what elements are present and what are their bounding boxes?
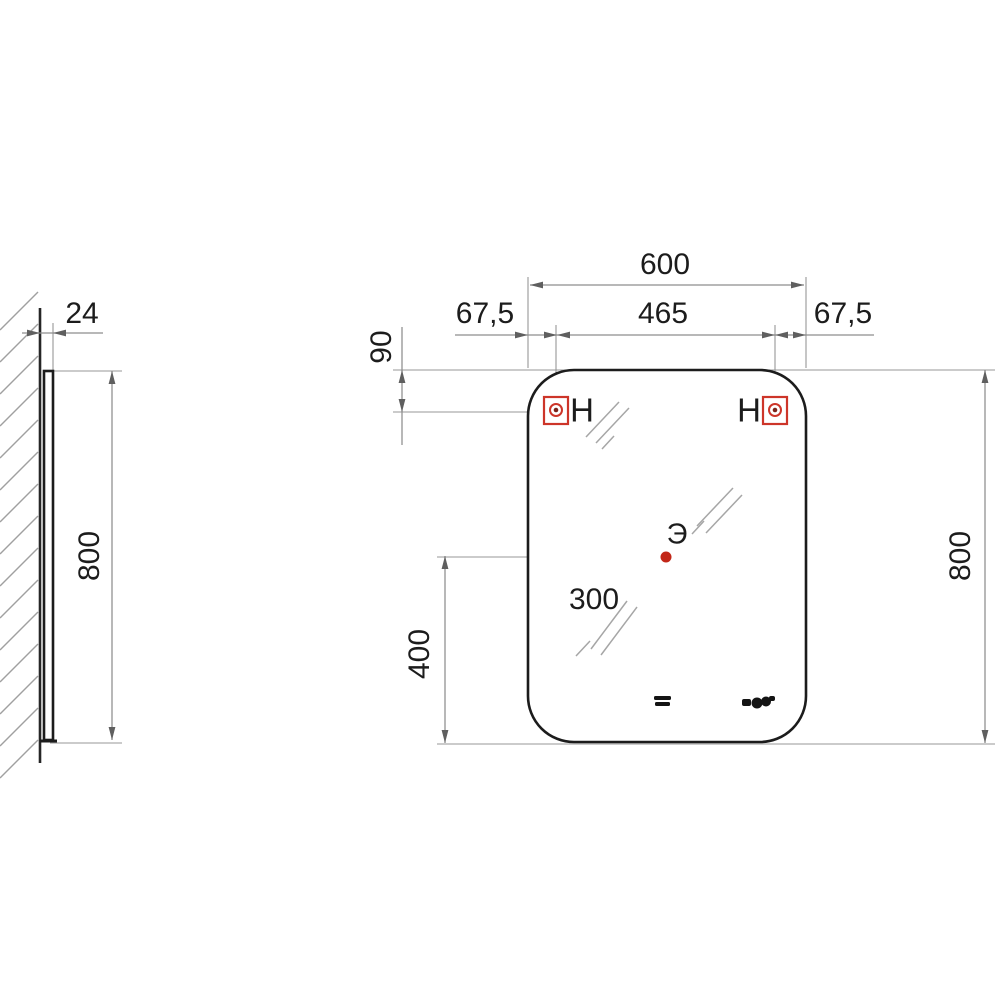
dim-offset-left: 67,5 (456, 299, 514, 329)
mirror-side-view (40, 371, 57, 741)
dim-offset-right: 67,5 (814, 299, 872, 329)
drawing-linework (0, 0, 1000, 1000)
hanger-label-left: H (570, 394, 594, 427)
dimension-lines (22, 285, 985, 743)
mirror-installation-drawing: 24 800 600 67,5 465 67,5 90 800 400 300 … (0, 0, 1000, 1000)
dim-height-front: 800 (946, 531, 976, 581)
dim-outlet-vertical: 400 (405, 629, 435, 679)
hanger-bracket-right-icon (763, 397, 787, 424)
hanger-label-right: H (737, 394, 761, 427)
dim-depth: 24 (65, 299, 98, 329)
outlet-label: Э (667, 521, 688, 550)
dim-hanger-drop: 90 (367, 330, 397, 363)
dim-width: 600 (640, 250, 690, 280)
wall-hatch-icon (0, 292, 38, 778)
dimension-arrows (27, 282, 988, 743)
outlet-point-icon (661, 552, 672, 563)
dim-hanger-spacing: 465 (638, 299, 688, 329)
hanger-bracket-left-icon (544, 397, 568, 424)
dim-height-side: 800 (75, 531, 105, 581)
dim-outlet-horizontal: 300 (569, 585, 619, 615)
extension-lines (50, 277, 995, 744)
